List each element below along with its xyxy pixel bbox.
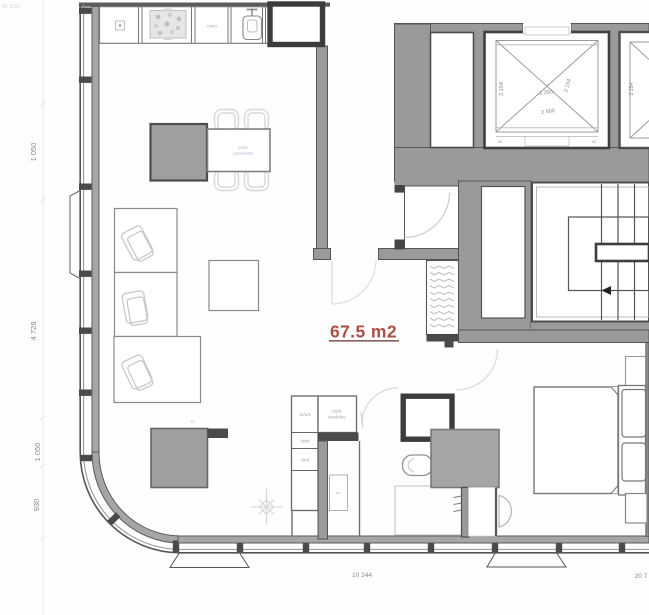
svg-text:cb/wm: cb/wm	[299, 412, 312, 417]
svg-text:wc: wc	[336, 490, 341, 495]
svg-text:oven: oven	[207, 24, 217, 29]
svg-text:1 050: 1 050	[29, 143, 38, 162]
svg-text:table: table	[238, 145, 248, 150]
svg-text:1600x900: 1600x900	[233, 151, 254, 156]
svg-text:67.5 m2: 67.5 m2	[330, 322, 397, 342]
svg-text:1 050: 1 050	[33, 443, 42, 462]
svg-text:2 154: 2 154	[629, 83, 635, 96]
svg-text:cbrd: cbrd	[301, 458, 310, 463]
svg-text:cb/td: cb/td	[300, 439, 310, 444]
svg-text:50: 50	[498, 139, 503, 144]
svg-text:10 244: 10 244	[352, 572, 372, 579]
svg-text:N° 5.01: N° 5.01	[2, 4, 20, 10]
svg-text:wardrobe: wardrobe	[328, 415, 346, 420]
svg-text:4 728: 4 728	[29, 322, 38, 341]
svg-text:930: 930	[32, 499, 41, 512]
svg-text:2 154: 2 154	[499, 82, 505, 96]
svg-text:cupb.: cupb.	[332, 409, 342, 414]
svg-text:50: 50	[592, 139, 597, 144]
svg-text:20 7: 20 7	[635, 573, 648, 580]
